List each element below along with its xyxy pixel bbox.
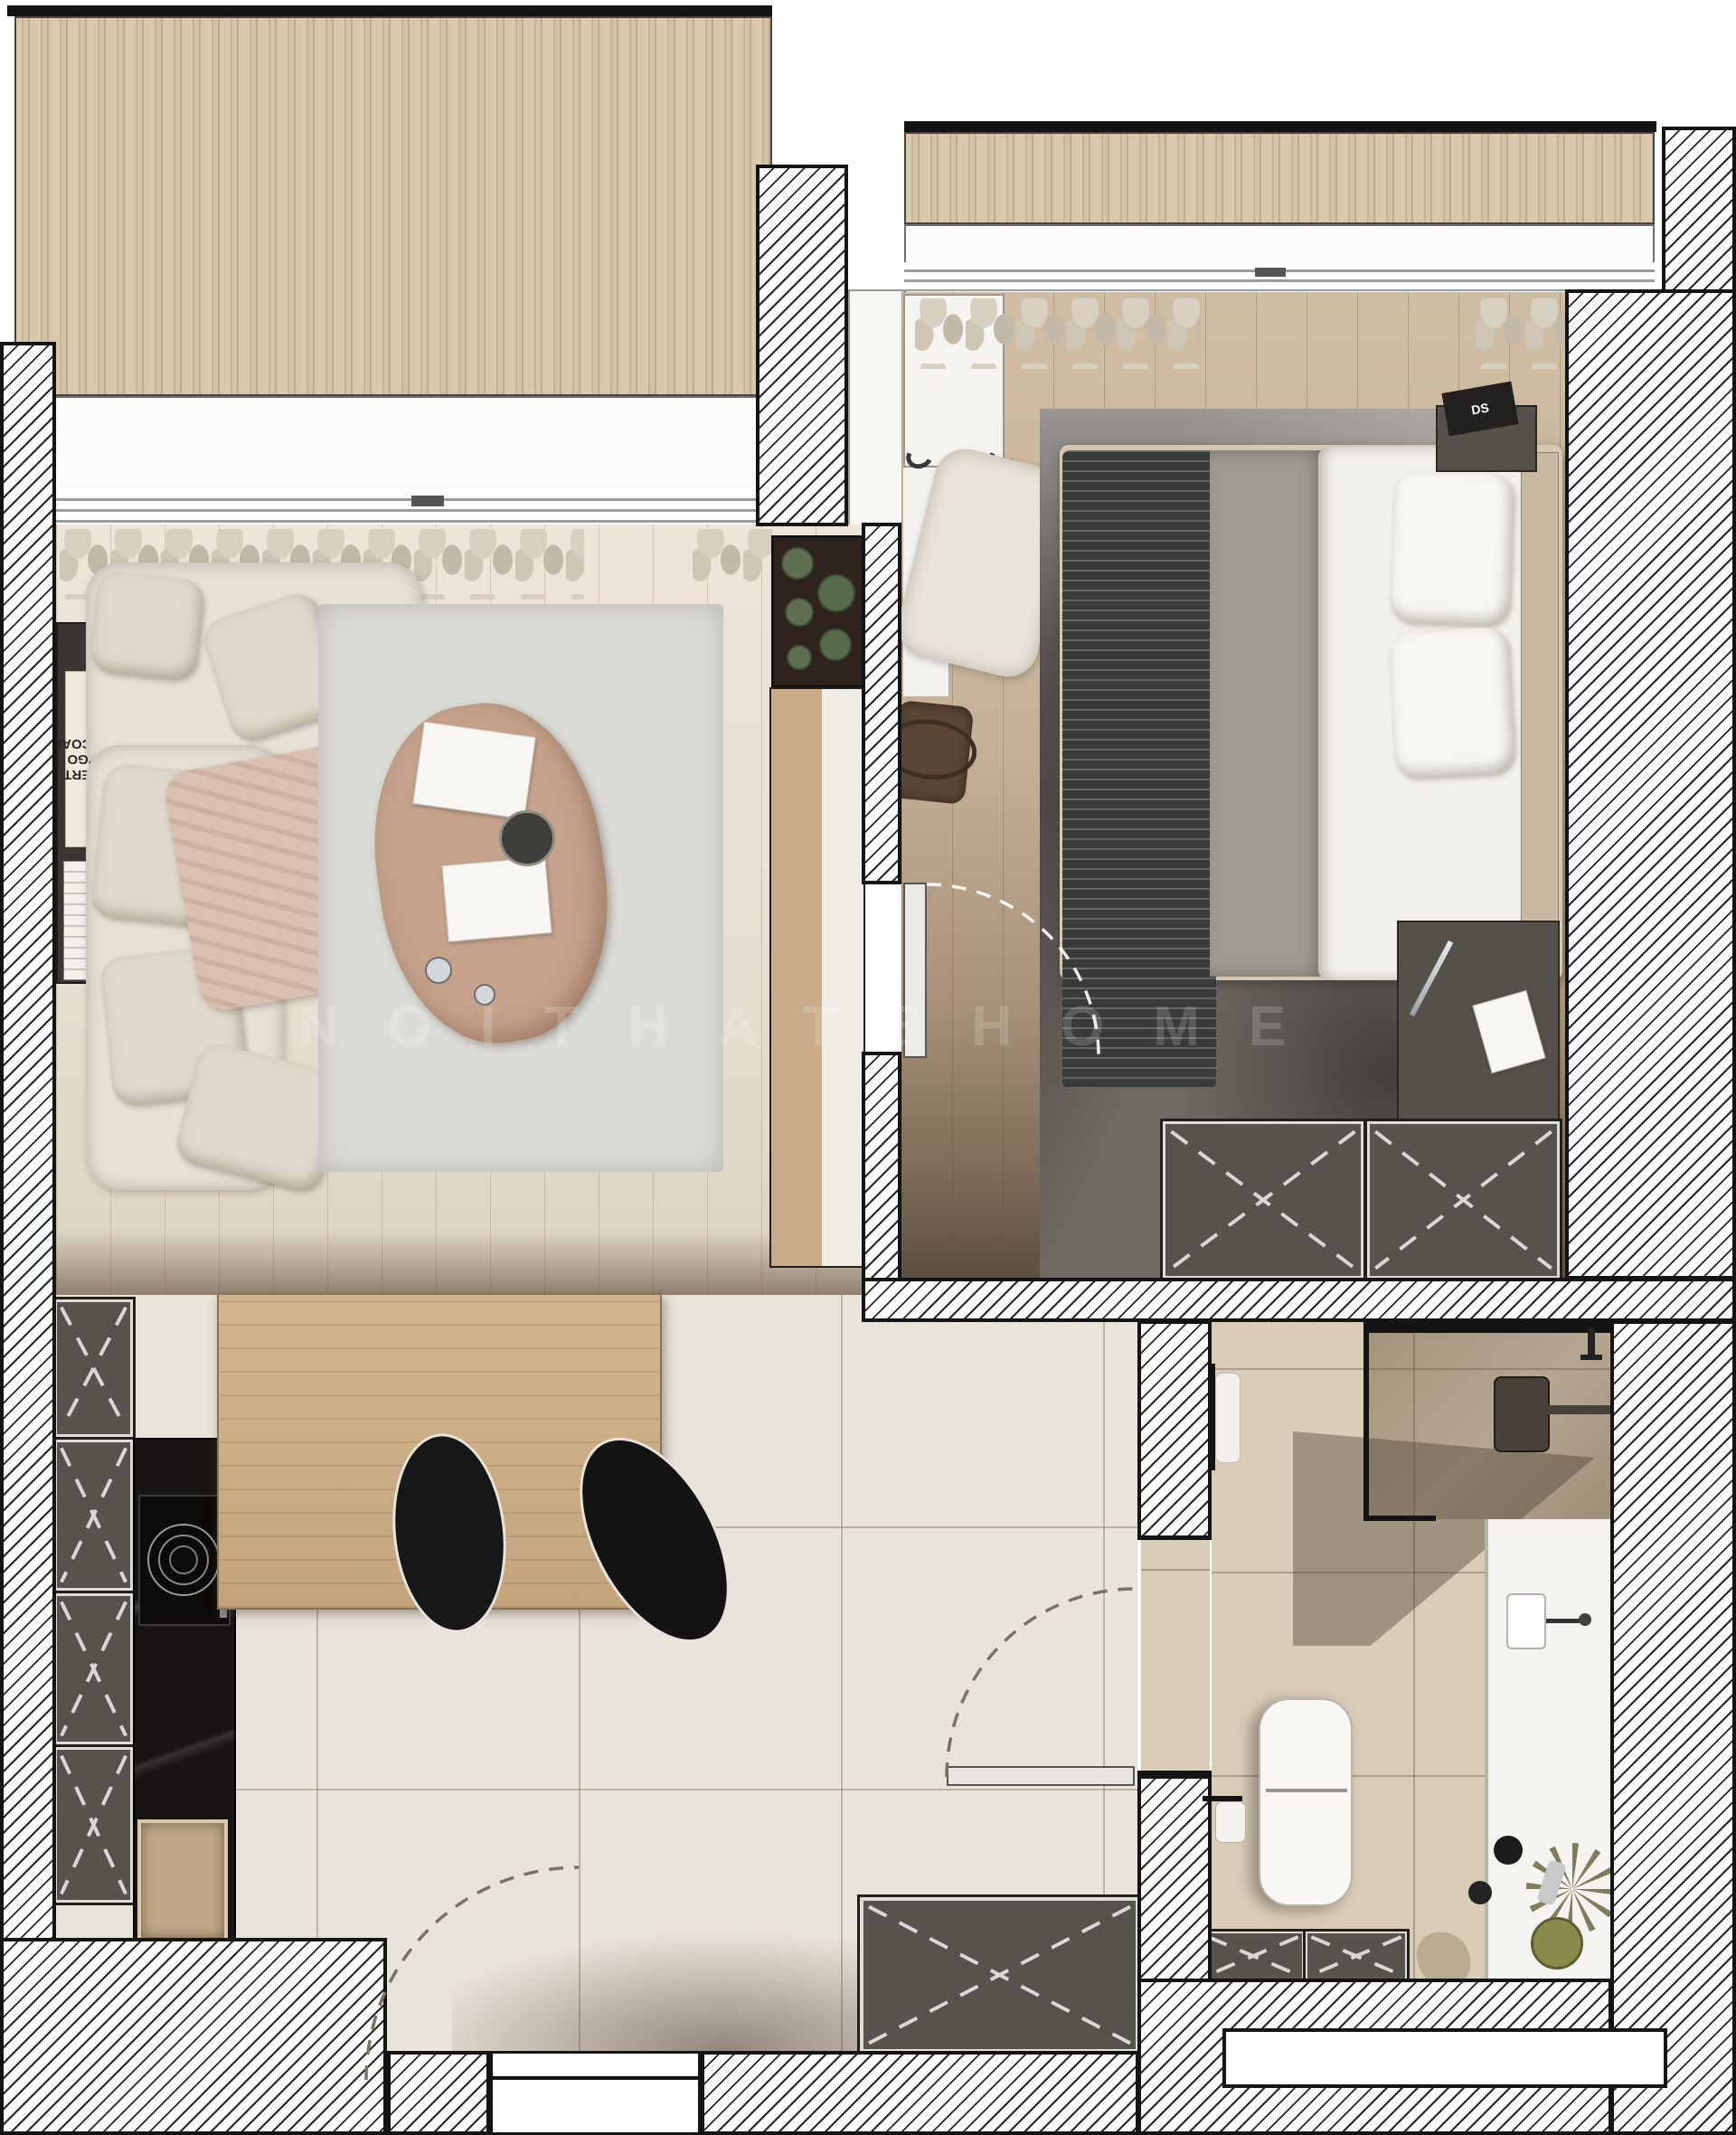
bed-blanket-gray [1210,450,1326,977]
coffee-cup [425,957,452,984]
window-frame-left [47,490,772,526]
bottom-wall-right-of-entry [701,2051,1139,2135]
headboard [1521,452,1559,977]
toilet-drawer-unit [1203,1932,1304,1980]
bedroom-right-wall [1565,289,1736,1280]
window-handle-left [411,496,444,506]
bathroom-door-jamb [1137,1535,1212,1540]
balcony-deck-right [904,132,1655,224]
top-wall-right [904,121,1656,132]
shower-top-bar [1367,1322,1610,1333]
inner-wall-upper [862,523,901,884]
curtains-living-right [693,529,772,592]
bathroom-right-wall [1610,1320,1736,2135]
bowl [499,810,555,866]
washbasin [1506,1593,1546,1649]
floor-plan: ROBERT LONGO CHARCOAL DS [0,0,1736,2135]
curtains-bedroom-left [915,298,1200,369]
balcony-deck-left [14,16,772,396]
right-wall-top [1662,127,1736,294]
window-handle-right [1255,268,1286,277]
basin-faucet-head [1579,1613,1591,1626]
sofa-pillow [89,570,205,682]
watermark: NOITHATSHOME [298,995,1335,1059]
toilet-drawer-unit [1306,1932,1407,1980]
entry-door-slab-line [490,2076,701,2080]
kitchen-cabinet [54,1440,133,1591]
shower-glass-horizontal [1363,1516,1436,1521]
hall-wardrobe [860,1897,1139,2053]
kitchen-sink [137,1819,228,1941]
bottom-wall-left-of-entry [387,2051,490,2135]
entry-door-niche [490,2051,701,2135]
cactus [819,628,852,661]
media-cabinet [769,687,865,1268]
toilet [1259,1698,1353,1906]
cactus [785,598,814,627]
cosmetic-dark [1468,1881,1492,1904]
shower-mixer-icon [1580,1355,1602,1360]
bathroom-door-leaf [947,1766,1135,1786]
left-wall [0,342,56,2135]
shower-head [1494,1376,1550,1452]
magazines-on-table [442,856,552,942]
service-niche [1222,2028,1667,2088]
bed-throw-dark [1062,450,1216,1089]
bathroom-door-opening [1141,1539,1210,1772]
bed-pillow [1390,470,1514,627]
window-pier-wall [756,165,848,526]
hob-ring [169,1545,198,1574]
nightstand-book-label: DS [1470,400,1490,417]
cactus [781,547,814,580]
bedroom-bottom-wall [862,1278,1736,1322]
magazines-on-table [412,722,536,820]
cactus [817,574,855,612]
bottom-left-wall [0,1938,387,2135]
cosmetic-dark [1494,1836,1523,1865]
window-frame-right [904,262,1655,291]
living-floor-shadow [56,1230,862,1295]
bedroom-wardrobe-unit [1163,1121,1363,1279]
towel [1215,1373,1241,1463]
inner-wall-lower [862,1052,901,1281]
bathroom-door-jamb [1137,1771,1212,1775]
kitchen-cabinet [54,1747,133,1903]
window-jamb-return [848,289,904,526]
toilet-paper-roll [1215,1801,1246,1843]
kitchen-cabinet [54,1299,133,1437]
green-jar [1531,1917,1583,1970]
bed-pillow [1389,627,1515,779]
bathroom-left-wall-upper [1137,1320,1212,1539]
shower-arm [1548,1405,1611,1414]
cactus [787,645,812,670]
kitchen-cabinet [54,1593,133,1744]
top-wall-left [7,5,772,16]
cactus-planter [771,535,867,687]
bedroom-wardrobe-unit [1367,1121,1560,1279]
shower-glass-vertical [1363,1320,1369,1521]
toilet-seat-line [1266,1789,1347,1792]
